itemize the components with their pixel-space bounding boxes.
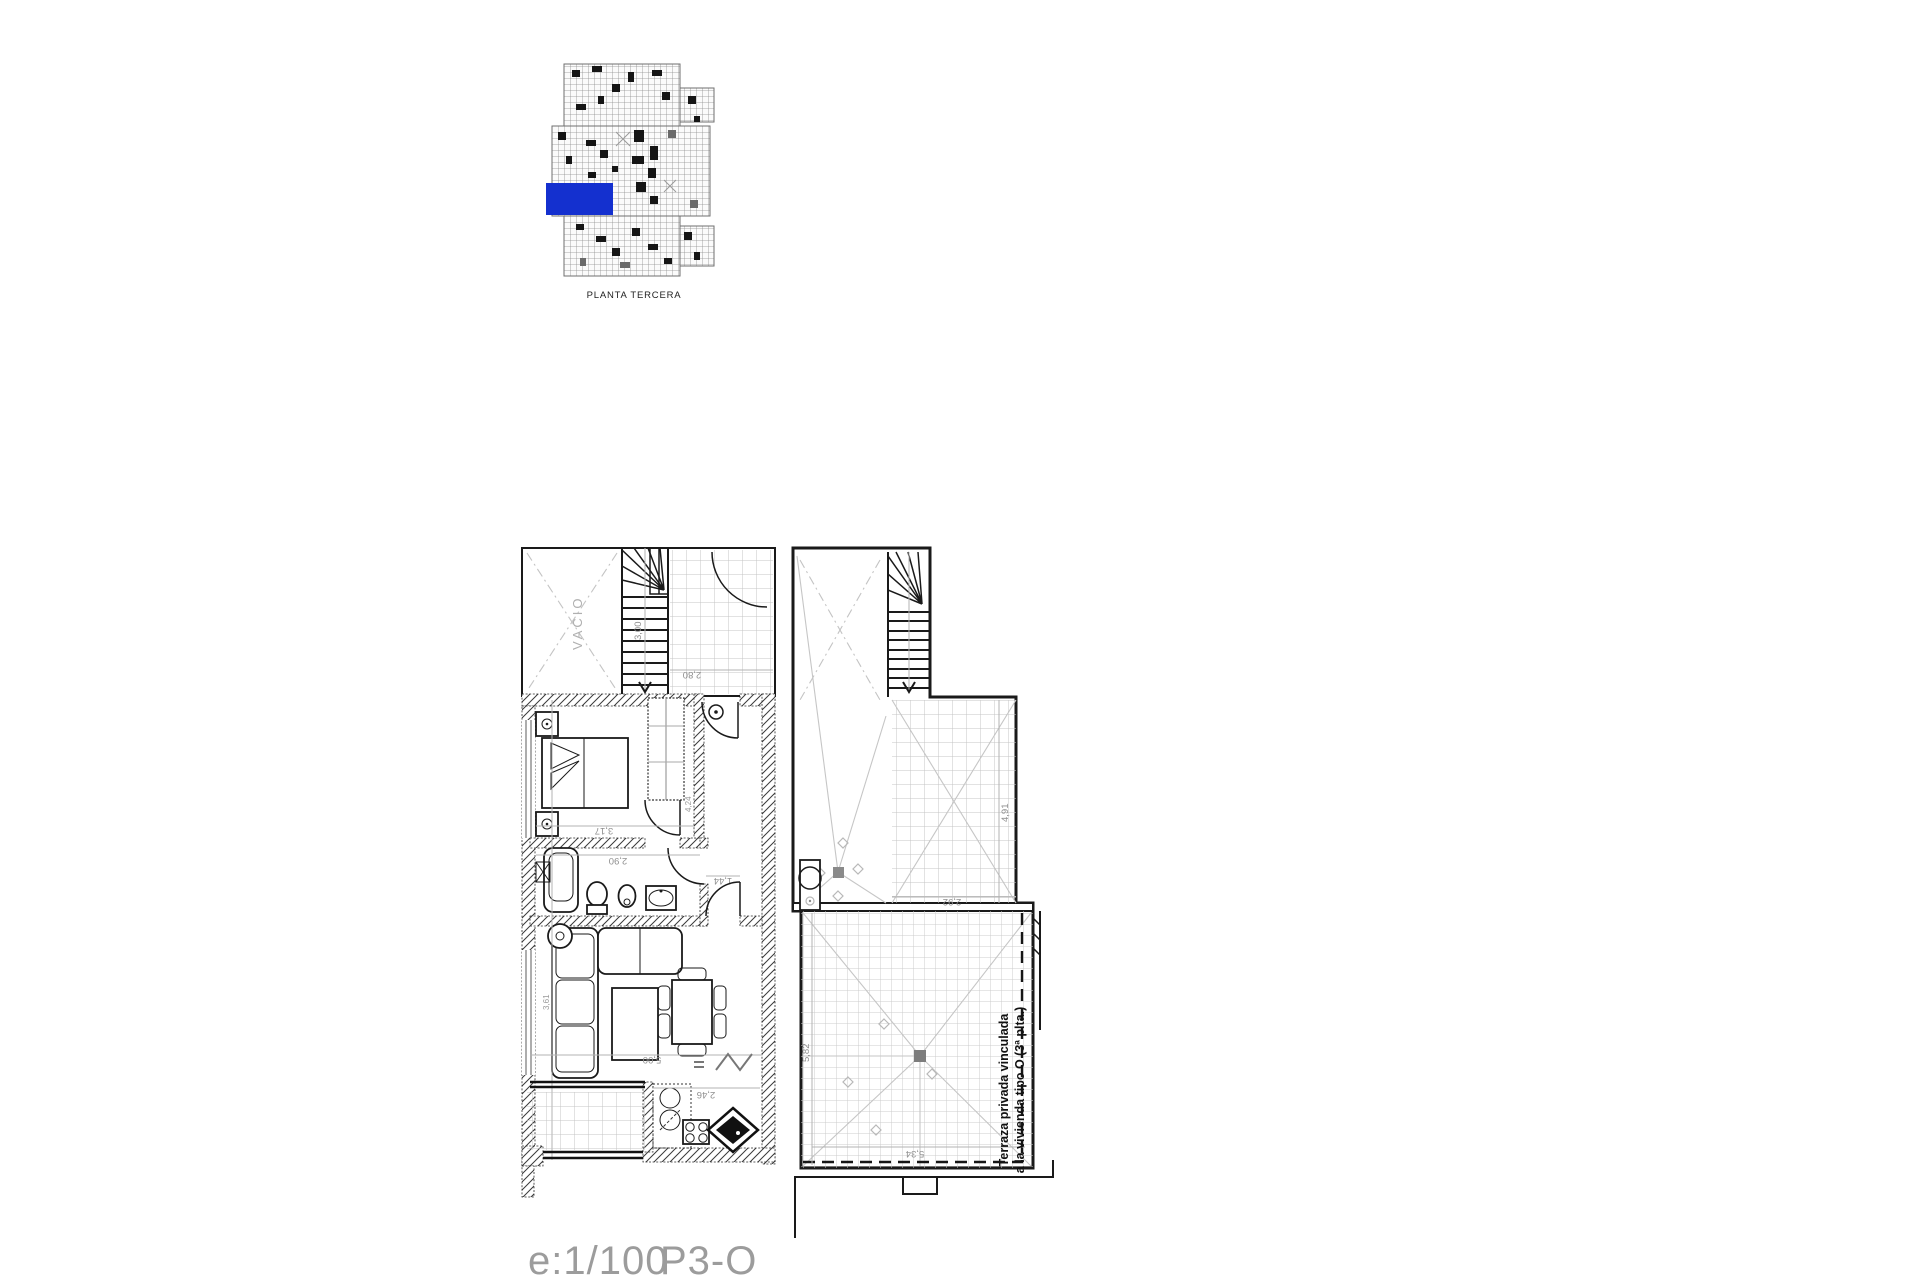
balcony-window	[530, 1082, 645, 1087]
dim-bedroom: 3,17	[595, 825, 614, 836]
terrace-divider-wall	[793, 903, 1033, 911]
hob-icon	[683, 1120, 709, 1144]
balcony	[527, 1082, 645, 1158]
boundary-tab	[903, 1177, 937, 1194]
door-arc-bedroom	[645, 800, 680, 835]
bidet-icon	[619, 885, 636, 907]
dim-upper-terrace-width: 2,92	[943, 896, 962, 907]
sheet-label: P3-O	[660, 1239, 757, 1280]
stairs-icon	[622, 548, 668, 696]
dim-hall: 2,80	[683, 669, 702, 680]
upper-terrace: 4,91 2,92	[892, 700, 1016, 907]
chair-icon	[678, 968, 706, 980]
window-living	[522, 950, 535, 1075]
terrace-note-line1: Terraza privada vinculada	[997, 1013, 1011, 1167]
kitchen: 2,46	[653, 1084, 760, 1152]
scale-label: e:1/100	[528, 1239, 668, 1280]
dim-upper-terrace-depth: 4,91	[1000, 804, 1011, 823]
title-block: e:1/100 P3-O	[528, 1239, 757, 1280]
plan-sheet: PLANTA TERCERA VACIO 3,00 2,80	[0, 0, 1920, 1280]
balcony-railing	[543, 1152, 643, 1158]
wall-east	[762, 694, 775, 1164]
window-bedroom	[522, 720, 535, 838]
roof-area	[797, 556, 886, 910]
wall-bath-east-stub	[700, 838, 708, 848]
door-arc-living	[706, 882, 740, 916]
dim-living: 5,00	[643, 1054, 662, 1065]
terrace-note-line2: a la vivienda tipo O (3ª plta.)	[1013, 1007, 1027, 1173]
nightstand-icon	[536, 812, 558, 836]
wall-bath-east	[700, 884, 708, 926]
balcony-tiles	[527, 1092, 645, 1150]
chair-icon	[678, 1044, 706, 1056]
drain-icon	[914, 1050, 926, 1062]
apartment-plan: VACIO 3,00 2,80	[522, 548, 775, 1197]
chair-icon	[714, 1014, 726, 1038]
toilet-icon	[587, 882, 607, 914]
corner-unit-icon	[708, 1108, 758, 1152]
chair-icon	[714, 986, 726, 1010]
void-label: VACIO	[570, 596, 585, 651]
key-plan-caption: PLANTA TERCERA	[587, 290, 682, 301]
wall-bedroom-south	[530, 838, 645, 848]
nightstand-icon	[536, 712, 558, 736]
wall-south	[643, 1148, 775, 1162]
door-arc-entry	[702, 702, 738, 738]
bathroom: 2,90	[536, 848, 704, 914]
sink-icon	[660, 1088, 680, 1130]
coffee-table-icon	[612, 988, 658, 1060]
wardrobe-icon	[648, 698, 684, 800]
stairs-icon	[888, 552, 930, 697]
chair-icon	[658, 1014, 670, 1038]
wall-bedroom-east	[694, 694, 704, 838]
facade-step	[522, 1166, 534, 1197]
dim-bathroom: 2,90	[609, 855, 628, 866]
dim-stair: 3,00	[633, 622, 644, 641]
bedroom: 3,17 4,24	[536, 698, 694, 836]
dim-wardrobe: 4,24	[684, 796, 693, 812]
main-terrace: 5,82 5,34 Terraza privada vinculada a la…	[801, 911, 1033, 1173]
terrace-plan: 4,91 2,92 5,82 5,34 Terraza privada vinc…	[793, 548, 1053, 1238]
chair-icon	[658, 986, 670, 1010]
key-plan: PLANTA TERCERA	[546, 64, 714, 301]
drain-icon	[833, 867, 844, 878]
dining-table-icon	[658, 968, 726, 1056]
dim-main-terrace-depth: 5,82	[801, 1044, 812, 1063]
wall-hall-stub	[740, 916, 762, 926]
washbasin-icon	[646, 886, 676, 910]
ceiling-light-icon	[709, 705, 723, 719]
dim-kitchen: 2,46	[697, 1089, 716, 1100]
bed-icon	[542, 738, 628, 808]
floorplan-drawing: PLANTA TERCERA VACIO 3,00 2,80	[0, 0, 1920, 1280]
chimney-icon	[799, 860, 821, 910]
upper-zone: VACIO 3,00 2,80	[522, 548, 775, 696]
selected-unit-highlight	[546, 183, 613, 215]
dim-living-height: 3,61	[542, 994, 551, 1010]
door-arc-bathroom	[668, 848, 704, 884]
dim-main-terrace-width: 5,34	[906, 1148, 925, 1159]
